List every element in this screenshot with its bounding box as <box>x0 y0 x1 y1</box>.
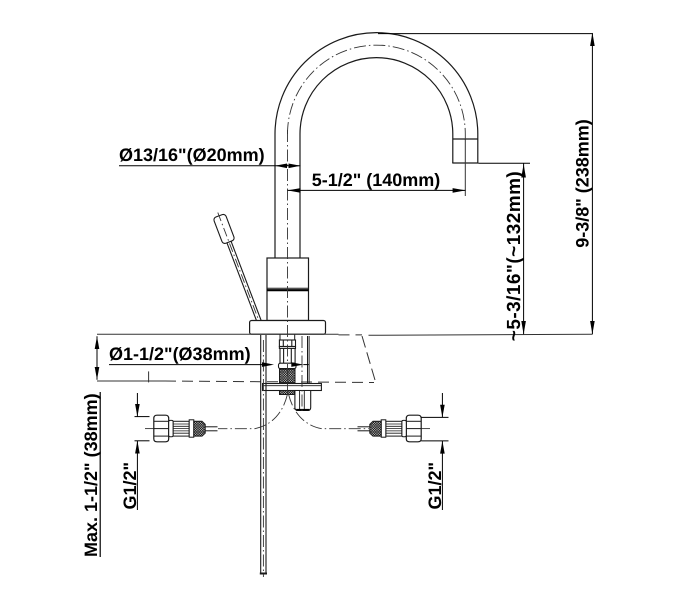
svg-text:Ø1-1/2"(Ø38mm): Ø1-1/2"(Ø38mm) <box>109 344 251 364</box>
svg-text:~5-3/16"(~132mm): ~5-3/16"(~132mm) <box>504 171 525 341</box>
svg-text:Ø13/16"(Ø20mm): Ø13/16"(Ø20mm) <box>119 145 265 165</box>
svg-text:G1/2": G1/2" <box>425 462 445 510</box>
svg-text:Max. 1-1/2" (38mm): Max. 1-1/2" (38mm) <box>81 393 101 557</box>
svg-text:5-1/2" (140mm): 5-1/2" (140mm) <box>312 170 441 190</box>
svg-text:9-3/8" (238mm): 9-3/8" (238mm) <box>573 119 593 248</box>
svg-text:G1/2": G1/2" <box>120 462 140 510</box>
